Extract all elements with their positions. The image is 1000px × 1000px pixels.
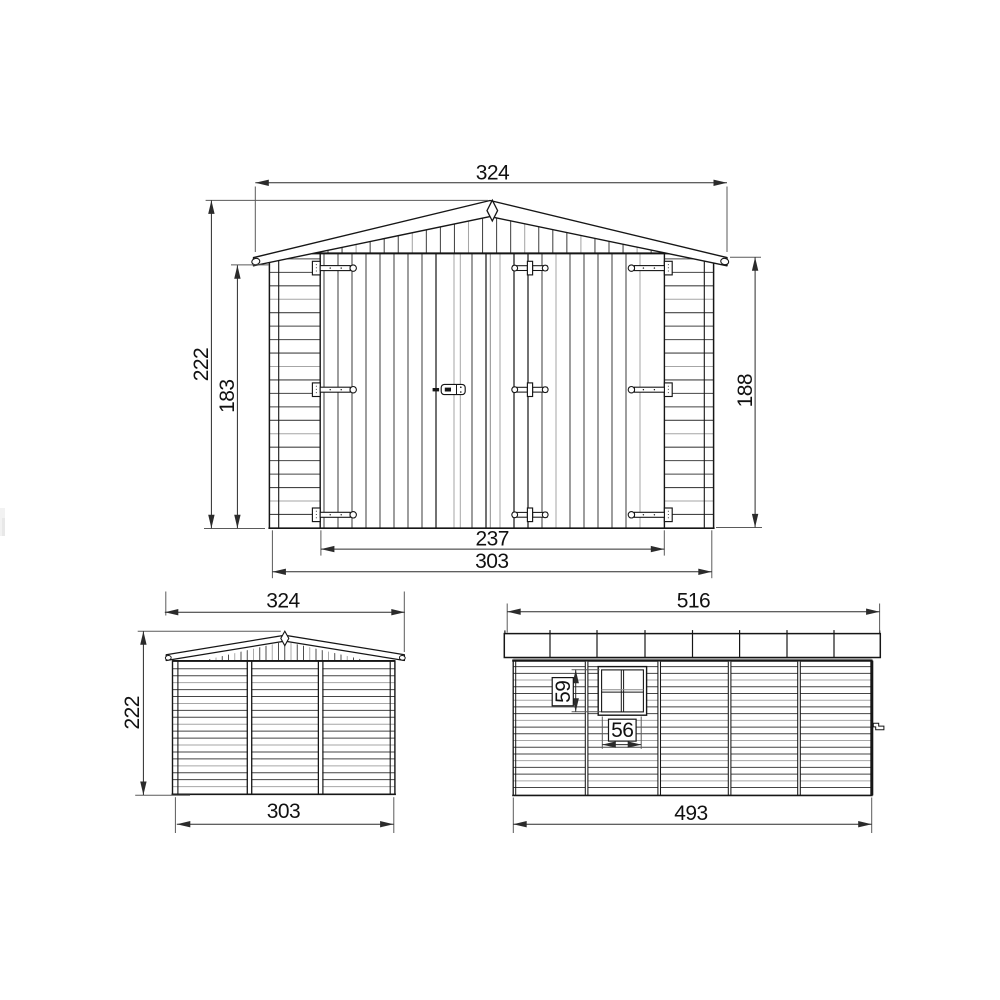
svg-text:516: 516	[677, 589, 710, 612]
svg-text:303: 303	[267, 800, 300, 823]
svg-text:324: 324	[266, 589, 300, 612]
svg-text:183: 183	[216, 380, 239, 413]
svg-text:237: 237	[476, 528, 509, 551]
svg-text:303: 303	[475, 550, 508, 573]
svg-text:324: 324	[476, 162, 510, 185]
svg-text:59: 59	[552, 681, 575, 703]
svg-text:222: 222	[190, 348, 213, 381]
svg-text:222: 222	[121, 696, 144, 729]
svg-text:56: 56	[611, 719, 633, 742]
svg-text:493: 493	[674, 802, 707, 825]
svg-text:188: 188	[734, 374, 757, 407]
